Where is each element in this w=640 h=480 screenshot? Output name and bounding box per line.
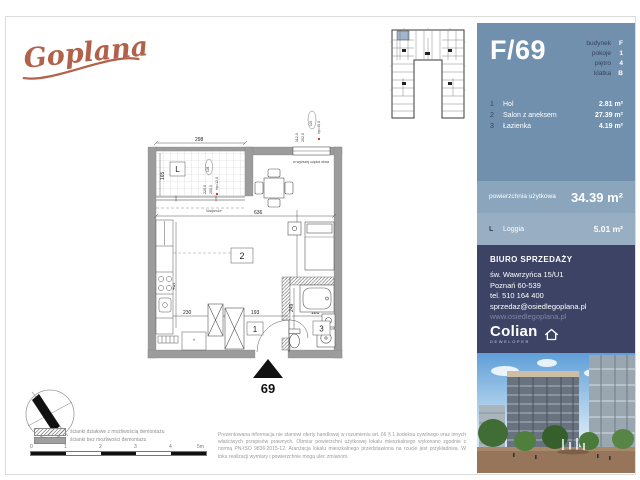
legend-swatch-solid [34, 437, 66, 444]
office-phone: tel. 510 164 400 [490, 291, 622, 302]
loggia-value: 5.01 m² [594, 224, 623, 234]
attr-value: F [616, 39, 623, 49]
loggia-floor [156, 151, 245, 196]
room-area: 27.39 m² [595, 110, 623, 121]
room-row-salon: 2 Salon z aneksem 27.39 m² [490, 110, 623, 121]
entry-arrow [253, 359, 283, 378]
office-email[interactable]: sprzedaz@osiedlegoplana.pl [490, 302, 622, 313]
attr-label: piętro [595, 59, 611, 69]
ann-log-hp: hp=12,0 [215, 177, 219, 190]
scale-bar-segments [30, 451, 207, 456]
room-list: 1 Hol 2.81 m² 2 Salon z aneksem 27.39 m²… [490, 99, 623, 132]
room-label-loggia: L [175, 165, 180, 174]
ann-win-h: 202,0 [301, 133, 305, 142]
ann-log-id: 128 [206, 166, 210, 172]
entry-number: 69 [261, 381, 275, 396]
room-name: Hol [503, 99, 599, 110]
room-label-salon: 2 [239, 251, 244, 261]
ann-window-note: w wyższej części okna [293, 160, 329, 164]
scale-tick: 4 [169, 444, 172, 450]
usable-area-band: powierzchnia użytkowa 34.39 m² [477, 181, 635, 213]
legend-label: ścianki bez możliwości demontażu [70, 437, 146, 443]
developer-name: Colian [490, 325, 538, 339]
ann-win-hp: hp=45,0 [317, 121, 321, 134]
development-photo [477, 353, 635, 473]
room-area: 2.81 m² [599, 99, 623, 110]
room-label-hall: 1 [253, 325, 258, 334]
dim-636: 636 [254, 210, 263, 216]
window-annotations: 112,0 202,0 129 hp=45,0 w wyższej części… [293, 111, 329, 164]
ann-log-h: 200,0 [209, 185, 213, 194]
attr-pietro: piętro 4 [586, 59, 623, 69]
dim-298: 298 [195, 137, 204, 143]
room-no: 2 [490, 110, 503, 121]
wardrobes [208, 304, 244, 349]
ann-win-w: 112,0 [295, 133, 299, 142]
dim-230: 230 [183, 310, 192, 316]
bed [305, 222, 334, 270]
vent-marker-loggia [216, 193, 218, 195]
vent-marker-window [318, 138, 320, 140]
sales-office-panel: BIURO SPRZEDAŻY św. Wawrzyńca 15/U1 Pozn… [477, 245, 635, 353]
legend-label: ścianki działowe z możliwością demontażu [70, 429, 165, 435]
dining-set [255, 169, 293, 207]
attr-value: B [616, 69, 623, 79]
scale-bar: 0 1 2 3 4 5m [30, 444, 206, 456]
ann-win-id: 129 [309, 120, 313, 126]
sidebar: F/69 budynek F pokoje 1 piętro 4 klatka … [477, 23, 635, 473]
scale-tick: 1 [64, 444, 67, 450]
room-name: Salon z aneksem [503, 110, 595, 121]
goplana-logo-text: Goplana [22, 31, 148, 75]
loggia-band: L Loggia 5.01 m² [477, 213, 635, 245]
room-area: 4.19 m² [599, 121, 623, 132]
unit-info-panel: F/69 budynek F pokoje 1 piętro 4 klatka … [477, 23, 635, 181]
nightstand [288, 222, 301, 235]
radiator-kitchen [158, 336, 178, 343]
attr-label: klatka [594, 69, 611, 79]
usable-area-label: powierzchnia użytkowa [489, 193, 571, 201]
house-icon [543, 327, 560, 342]
dim-249: 249 [289, 303, 295, 312]
legal-disclaimer: Prezentowana informacja nie stanowi ofer… [218, 432, 466, 461]
dim-165: 165 [160, 171, 166, 180]
usable-area-value: 34.39 m² [571, 190, 623, 205]
scale-tick: 0 [30, 444, 33, 450]
flyer-page: Goplana [0, 0, 640, 480]
scale-tick: 3 [134, 444, 137, 450]
dim-193: 193 [251, 310, 260, 316]
legend-row-fixed: ścianki bez możliwości demontażu [34, 436, 165, 444]
office-website[interactable]: www.osiedlegoplana.pl [490, 312, 622, 323]
attr-label: budynek [586, 39, 611, 49]
utility-box: * [182, 332, 206, 350]
ann-log-w: 220,0 [203, 185, 207, 194]
developer-logo: Colian DEWELOPER [490, 325, 560, 344]
attr-label: pokoje [592, 49, 611, 59]
lintel-label: Nadproże [206, 209, 222, 213]
room-no: 1 [490, 99, 503, 110]
attr-value: 4 [616, 59, 623, 69]
sales-office-address: św. Wawrzyńca 15/U1 Poznań 60-539 tel. 5… [490, 270, 622, 323]
kitchen [156, 220, 173, 334]
sales-office-title: BIURO SPRZEDAŻY [490, 255, 622, 264]
room-name: Łazienka [503, 121, 599, 132]
room-label-bath: 3 [319, 325, 324, 334]
toilet [289, 329, 300, 348]
attr-budynek: budynek F [586, 39, 623, 49]
unit-attributes: budynek F pokoje 1 piętro 4 klatka B [586, 39, 623, 79]
legend-row-demountable: ścianki działowe z możliwością demontażu [34, 428, 165, 436]
unit-id: F/69 [490, 35, 546, 66]
attr-value: 1 [616, 49, 623, 59]
loggia-glazed-door [156, 196, 245, 202]
attr-klatka: klatka B [586, 69, 623, 79]
scale-tick: 5m [197, 444, 204, 450]
room-row-lazienka: 3 Łazienka 4.19 m² [490, 121, 623, 132]
salon-window [293, 147, 330, 155]
attr-pokoje: pokoje 1 [586, 49, 623, 59]
key-plan-highlighted-unit [397, 31, 409, 40]
legend-swatch-hatched [34, 428, 66, 436]
goplana-logo: Goplana [14, 18, 148, 92]
walls-legend: ścianki działowe z możliwością demontażu… [34, 428, 165, 444]
loggia-label: Loggia [503, 226, 594, 233]
key-plan [384, 18, 472, 124]
scale-tick: 2 [99, 444, 102, 450]
floor-plan: Nadproże 298 165 636 402 497 230 193 181… [128, 90, 374, 402]
office-street: św. Wawrzyńca 15/U1 [490, 270, 622, 281]
bathtub [300, 285, 334, 312]
room-no: 3 [490, 121, 503, 132]
room-row-hol: 1 Hol 2.81 m² [490, 99, 623, 110]
loggia-no: L [489, 226, 503, 233]
office-city: Poznań 60-539 [490, 281, 622, 292]
